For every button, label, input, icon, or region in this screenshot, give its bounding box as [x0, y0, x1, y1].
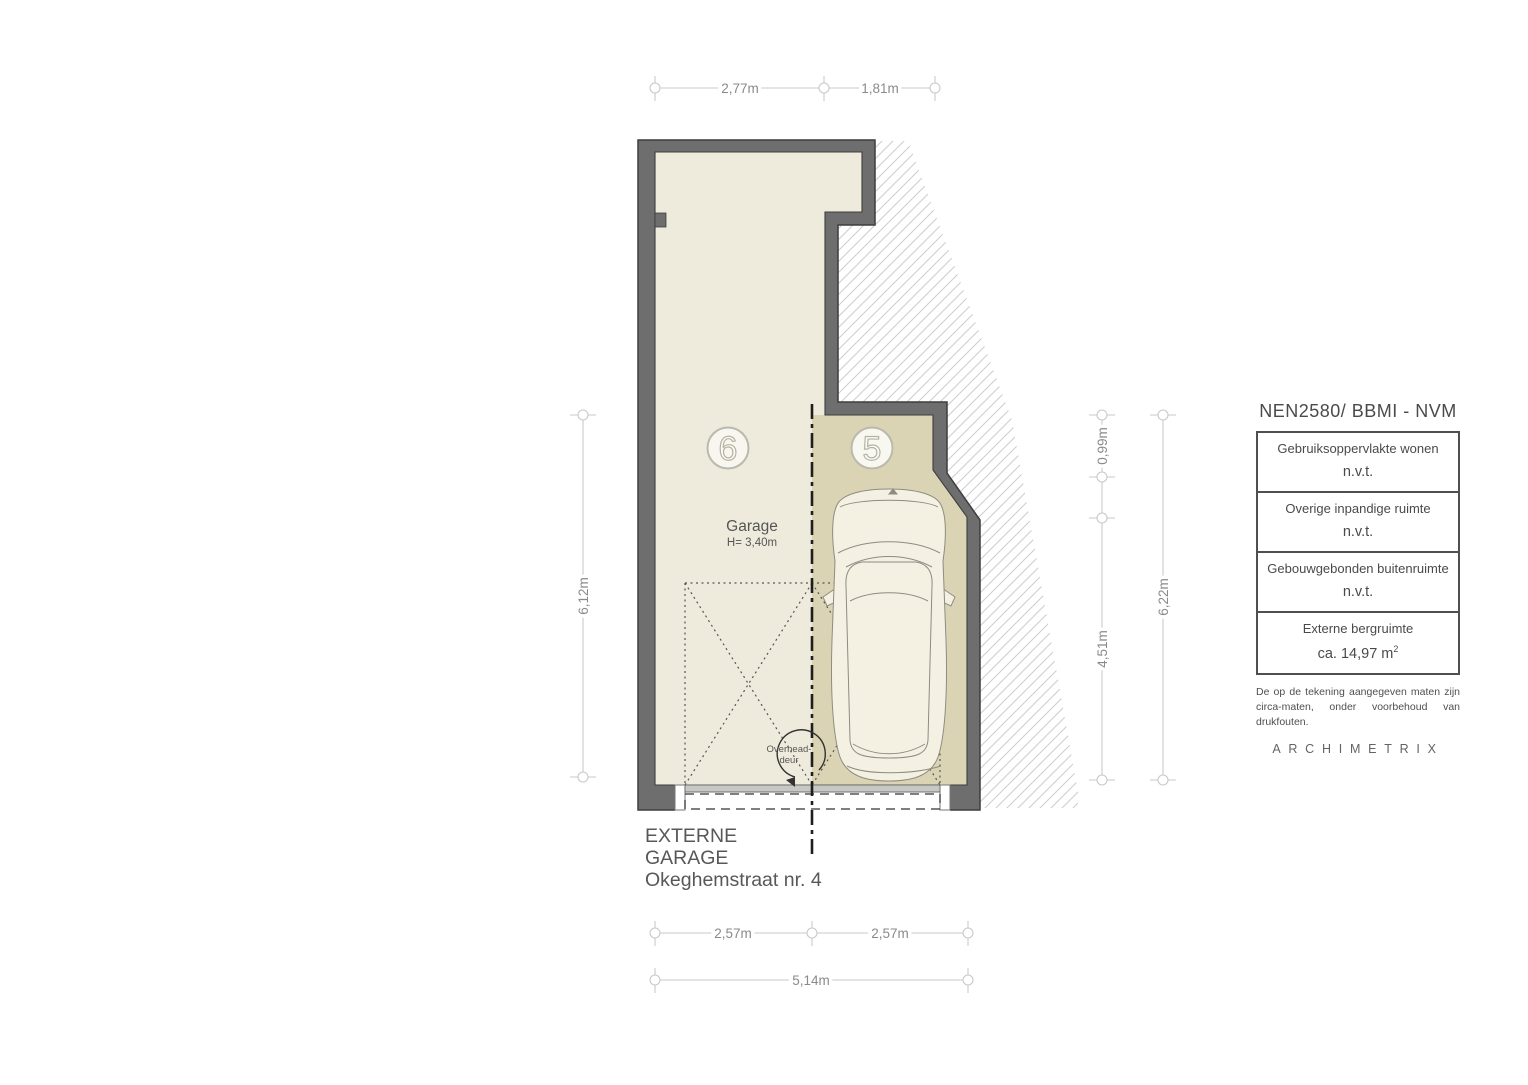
dim-top-right-label: 1,81m [861, 81, 899, 96]
disclaimer-line2: circa-maten, onder voorbehoud van drukfo… [1256, 700, 1460, 730]
legend-row-value: n.v.t. [1262, 464, 1454, 480]
door-jamb-right [940, 785, 950, 810]
dim-left-label: 6,12m [576, 577, 591, 615]
legend-row-label: Gebouwgebonden buitenruimte [1262, 561, 1454, 576]
spot-circle-5: 5 [852, 428, 893, 469]
wall-nib [655, 213, 666, 227]
overhead-door-label-line2: deur [779, 755, 798, 766]
legend-row-label: Overige inpandige ruimte [1262, 501, 1454, 516]
spot-number-6: 6 [719, 430, 738, 468]
legend-title: NEN2580/ BBMI - NVM [1256, 401, 1460, 422]
legend-row-value: n.v.t. [1262, 524, 1454, 540]
dim-right-622-label: 6,22m [1156, 578, 1171, 616]
dim-right-451-label: 4,51m [1095, 630, 1110, 668]
legend-table: Gebruiksoppervlakte wonen n.v.t. Overige… [1256, 431, 1460, 675]
square-meter-sup: 2 [1393, 644, 1398, 654]
room-label: Garage [726, 518, 778, 535]
drawing-title-line1: EXTERNE [645, 825, 737, 847]
dimension-right-inner [1089, 410, 1115, 785]
spot-circle-6: 6 [708, 428, 749, 469]
drawing-title-line2: GARAGE [645, 847, 728, 869]
dim-top-left-label: 2,77m [721, 81, 759, 96]
legend-row-inpandig: Overige inpandige ruimte n.v.t. [1258, 493, 1458, 553]
legend-row-bergruimte: Externe bergruimte ca. 14,97 m2 [1258, 613, 1458, 673]
dim-bottom-total-label: 5,14m [792, 973, 830, 988]
dim-right-099-label: 0,99m [1095, 427, 1110, 465]
legend-row-label: Gebruiksoppervlakte wonen [1262, 441, 1454, 456]
dim-bottom-left-label: 2,57m [714, 926, 752, 941]
overhead-door-label-line1: Overhead- [767, 744, 812, 755]
car-body [831, 489, 946, 781]
drawing-title: EXTERNE GARAGE Okeghemstraat nr. 4 [645, 825, 822, 891]
legend-row-value: ca. 14,97 m2 [1262, 644, 1454, 662]
legend-disclaimer: De op de tekening aangegeven maten zijn … [1256, 685, 1460, 731]
room-height-label: H= 3,40m [727, 537, 777, 549]
dim-bottom-right-label: 2,57m [871, 926, 909, 941]
legend-row-buitenruimte: Gebouwgebonden buitenruimte n.v.t. [1258, 553, 1458, 613]
drawing-title-line3: Okeghemstraat nr. 4 [645, 869, 822, 891]
car-top-view [823, 489, 955, 781]
legend-row-wonen: Gebruiksoppervlakte wonen n.v.t. [1258, 433, 1458, 493]
disclaimer-line1: De op de tekening aangegeven maten zijn [1256, 685, 1460, 700]
legend-row-label: Externe bergruimte [1262, 621, 1454, 636]
spot-number-5: 5 [863, 430, 882, 468]
dimension-bottom-row1 [650, 921, 973, 946]
brand-archimetrix: ARCHIMETRIX [1256, 742, 1460, 756]
nen2580-legend: NEN2580/ BBMI - NVM Gebruiksoppervlakte … [1256, 401, 1460, 756]
legend-row-value: n.v.t. [1262, 584, 1454, 600]
door-jamb-left [675, 785, 685, 810]
